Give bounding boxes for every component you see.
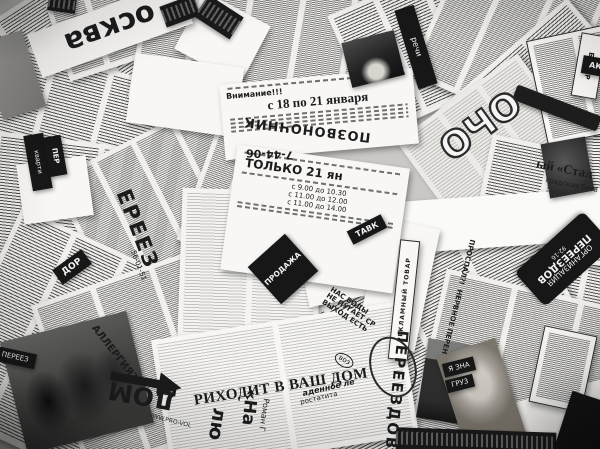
label-gruz-text: ГРУЗ (451, 378, 469, 389)
headline-lyu: лю (204, 406, 229, 441)
label-ya-zna-text: Я ЗНА (448, 361, 471, 373)
label-per-text: ПЕР (50, 148, 60, 165)
label-pereez-text: ПЕРЕЕЗ (1, 351, 29, 364)
headline-na-quote: «На (238, 388, 260, 426)
label-akts-text: АКЦ (588, 61, 600, 72)
label-rechi-text: речи (409, 36, 422, 57)
newspaper-collage-photo: Внимание!!! с 18 по 21 января ТОЛЬКО 21 … (0, 0, 600, 449)
label-prodazha-text: ПРОДАЖА (264, 251, 303, 287)
phone-number-upside: 7-44-06 (246, 147, 294, 161)
label-kvarti-text: кварти (33, 150, 44, 175)
